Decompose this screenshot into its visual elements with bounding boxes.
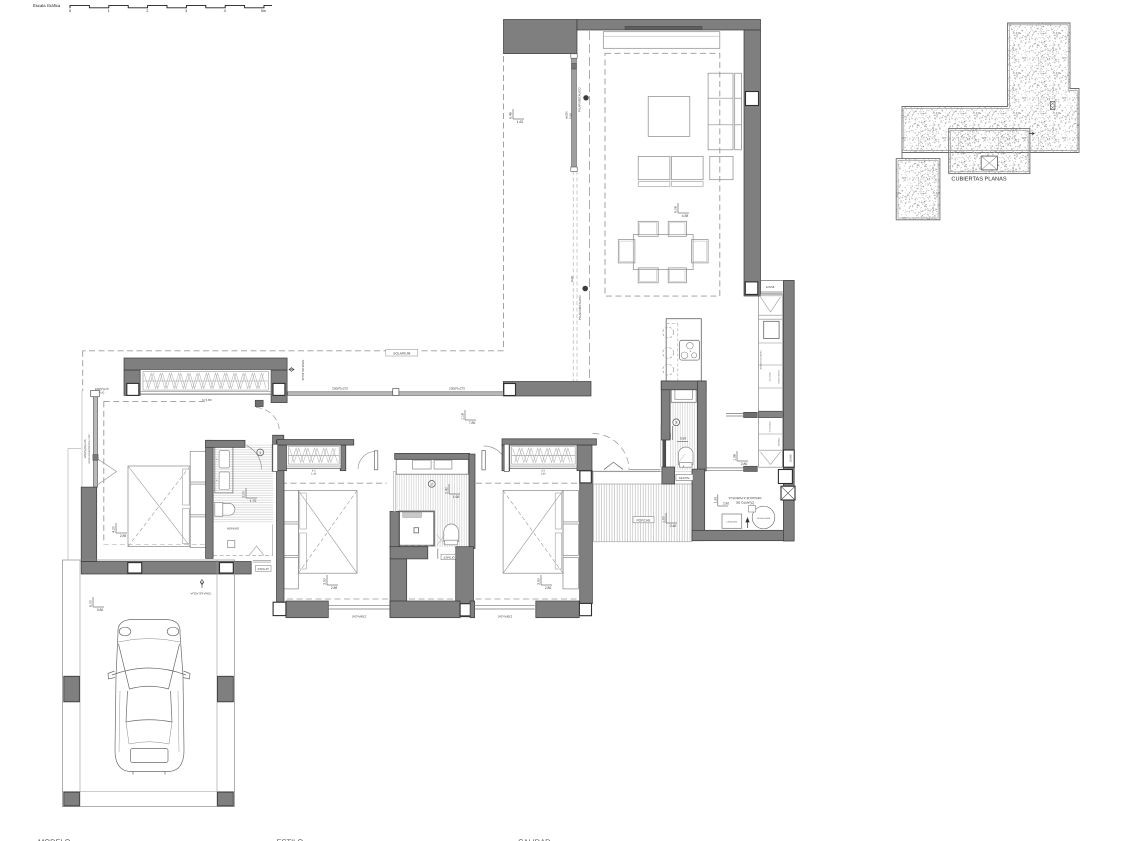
svg-text:2: 2 [146,9,148,13]
svg-text:1.90: 1.90 [713,497,717,503]
svg-text:ARMARIO: ARMARIO [778,437,781,446]
svg-text:1.65: 1.65 [517,120,524,124]
svg-text:5m: 5m [261,9,266,13]
svg-text:3: 3 [675,421,677,425]
svg-text:6.06: 6.06 [674,206,678,213]
svg-text:6.00: 6.00 [89,600,93,607]
svg-text:2.80: 2.80 [723,501,729,505]
svg-text:DEPOSI.: DEPOSI. [679,476,691,480]
svg-text:1.46: 1.46 [540,473,546,476]
svg-text:CALIDAD: CALIDAD [518,838,551,841]
svg-text:6x60: 6x60 [570,275,574,282]
svg-text:1.18: 1.18 [461,413,465,420]
svg-text:ESPEJO: ESPEJO [258,567,270,571]
svg-text:1: 1 [108,9,110,13]
svg-text:FIJO: FIJO [99,391,105,394]
svg-text:1.38: 1.38 [733,454,737,461]
svg-text:ACUMULADOR: ACUMULADOR [757,517,771,520]
svg-text:230(P)x275: 230(P)x275 [449,387,465,391]
svg-text:TOMA DE AGUA: TOMA DE AGUA [301,359,305,380]
svg-text:2: 2 [431,482,433,486]
svg-text:COLUMNA: COLUMNA [769,372,772,382]
svg-text:1.90: 1.90 [453,495,460,499]
svg-text:1.70: 1.70 [250,499,257,503]
svg-text:2.40: 2.40 [670,524,677,528]
svg-text:1.46: 1.46 [311,473,317,476]
svg-text:PILAR METALICO: PILAR METALICO [578,295,582,320]
svg-text:2.80: 2.80 [741,462,748,466]
svg-text:2.40: 2.40 [445,487,449,494]
svg-text:Escala Gráfica: Escala Gráfica [33,3,61,8]
svg-text:HORNO+MICRO: HORNO+MICRO [778,370,781,384]
svg-text:2.80: 2.80 [545,586,552,590]
svg-text:OSCURO/BATIENTE+FIJO: OSCURO/BATIENTE+FIJO [88,434,91,463]
svg-text:PILAR METALICO: PILAR METALICO [578,87,582,112]
svg-text:1ST ACCESA: 1ST ACCESA [769,421,772,433]
svg-text:3.80: 3.80 [97,608,104,612]
svg-text:2.88: 2.88 [331,586,338,590]
svg-text:7.80: 7.80 [469,421,476,425]
svg-text:6.46: 6.46 [509,112,513,119]
svg-text:3.00: 3.00 [242,491,246,498]
svg-text:PORCHE: PORCHE [636,518,651,522]
svg-text:3: 3 [185,9,187,13]
svg-text:0: 0 [69,9,71,13]
svg-text:125/68: 125/68 [766,285,775,289]
svg-text:120(P)x(H)+115: 120(P)x(H)+115 [84,439,87,458]
svg-text:DESAGÜE A PARCELA: DESAGÜE A PARCELA [728,496,762,500]
svg-text:4.38: 4.38 [682,214,689,218]
svg-text:4.20: 4.20 [112,526,116,533]
svg-text:2.88: 2.88 [120,534,127,538]
svg-text:230(P)x275: 230(P)x275 [332,387,348,391]
svg-text:LAVADORA: LAVADORA [726,520,737,523]
svg-text:ROPERO: ROPERO [227,527,240,531]
svg-text:TOMA DE AGUA: TOMA DE AGUA [190,592,211,596]
svg-text:1: 1 [259,451,261,455]
svg-text:SOLARIUM: SOLARIUM [393,351,410,355]
svg-text:4: 4 [224,9,226,13]
svg-text:230(P)x250: 230(P)x250 [497,615,512,619]
svg-text:CUBIERTAS PLANAS: CUBIERTAS PLANAS [951,177,1006,183]
svg-text:MODELO: MODELO [38,838,71,841]
svg-text:h/ 3.80: h/ 3.80 [202,398,212,402]
svg-text:ARMARIO ESCOBERO: ARMARIO ESCOBERO [760,350,763,370]
svg-text:125/68: 125/68 [790,454,793,462]
svg-text:ESPEJO: ESPEJO [444,556,456,560]
svg-text:230(P)x250: 230(P)x250 [351,615,366,619]
svg-text:ESTILO: ESTILO [277,838,304,841]
svg-text:1.50: 1.50 [662,516,666,523]
svg-text:3.50: 3.50 [537,578,541,585]
svg-text:3.50: 3.50 [323,578,327,585]
svg-text:0.90: 0.90 [680,437,686,441]
